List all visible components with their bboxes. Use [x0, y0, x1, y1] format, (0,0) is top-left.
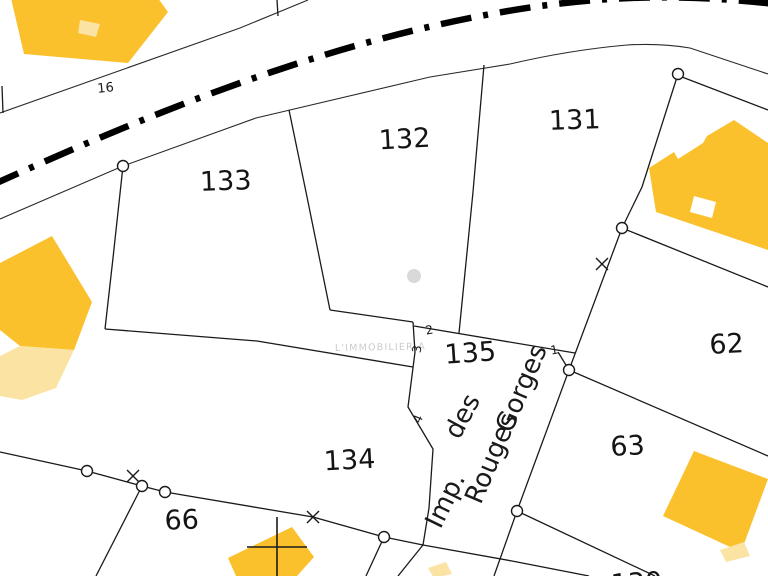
parcel-label-135: 135 — [444, 336, 498, 371]
x-mark-icon — [127, 470, 139, 482]
street-name-word-gorges: Gorges — [490, 340, 554, 437]
survey-point-icon — [137, 481, 148, 492]
x-mark-icon — [307, 511, 319, 523]
boundary-point-label-4: 4 — [410, 413, 426, 426]
survey-point-icon — [564, 365, 575, 376]
survey-point-icon — [512, 506, 523, 517]
parcel-label-134: 134 — [323, 444, 376, 478]
survey-point-icon — [82, 466, 93, 477]
parcel-boundaries — [0, 0, 768, 576]
survey-point-icon — [379, 532, 390, 543]
boundary-point-label-3: 3 — [410, 344, 425, 353]
survey-point-icon — [673, 69, 684, 80]
building-bottom-center — [228, 527, 314, 576]
street-name-word-des: des — [439, 389, 487, 444]
boundary-134-south-branch — [366, 537, 384, 576]
cadastral-map[interactable]: L'IMMOBILIER A — [0, 0, 768, 576]
boundary-131-northeast — [682, 77, 768, 110]
boundary-133-west — [105, 166, 123, 329]
building-annex-footprints — [0, 20, 750, 576]
boundary-132-south — [330, 310, 413, 322]
street-name-word-imp: Imp. — [420, 468, 472, 533]
boundary-left-tick — [2, 86, 3, 113]
parcel-label-62: 62 — [709, 328, 745, 361]
cadastral-map-canvas: L'IMMOBILIER A — [0, 0, 768, 576]
parcel-label-63: 63 — [610, 430, 646, 463]
building-top-right — [649, 120, 768, 250]
survey-point-icon — [617, 223, 628, 234]
building-bottom-annex-1 — [428, 562, 452, 576]
building-left-annex — [0, 346, 74, 400]
parcel-label-130: 130 — [610, 567, 663, 576]
survey-point-icon — [160, 487, 171, 498]
gray-dot-marker — [407, 269, 421, 283]
map-labels: 16 133 132 131 135 134 62 63 66 130 Imp.… — [97, 80, 745, 576]
boundary-point-label-2: 2 — [424, 323, 434, 338]
road-number-label: 16 — [97, 80, 115, 97]
parcel-label-132: 132 — [378, 123, 431, 157]
boundary-132-west — [289, 110, 330, 310]
boundary-66-west — [96, 486, 142, 576]
boundary-top-tick — [277, 0, 278, 16]
building-left — [0, 236, 92, 350]
boundary-132-east — [459, 65, 484, 333]
building-bottom-annex-2 — [720, 542, 750, 562]
building-bottom-right — [663, 451, 768, 552]
survey-point-icon — [118, 161, 129, 172]
boundary-point-label-1: 1 — [549, 343, 559, 358]
x-mark-icon — [596, 258, 608, 270]
building-footprints — [0, 0, 768, 576]
boundary-62-63 — [569, 370, 768, 456]
parcel-label-66: 66 — [164, 504, 199, 536]
parcel-label-131: 131 — [548, 104, 601, 137]
street-left-edge — [398, 322, 433, 576]
parcel-label-133: 133 — [199, 165, 252, 198]
